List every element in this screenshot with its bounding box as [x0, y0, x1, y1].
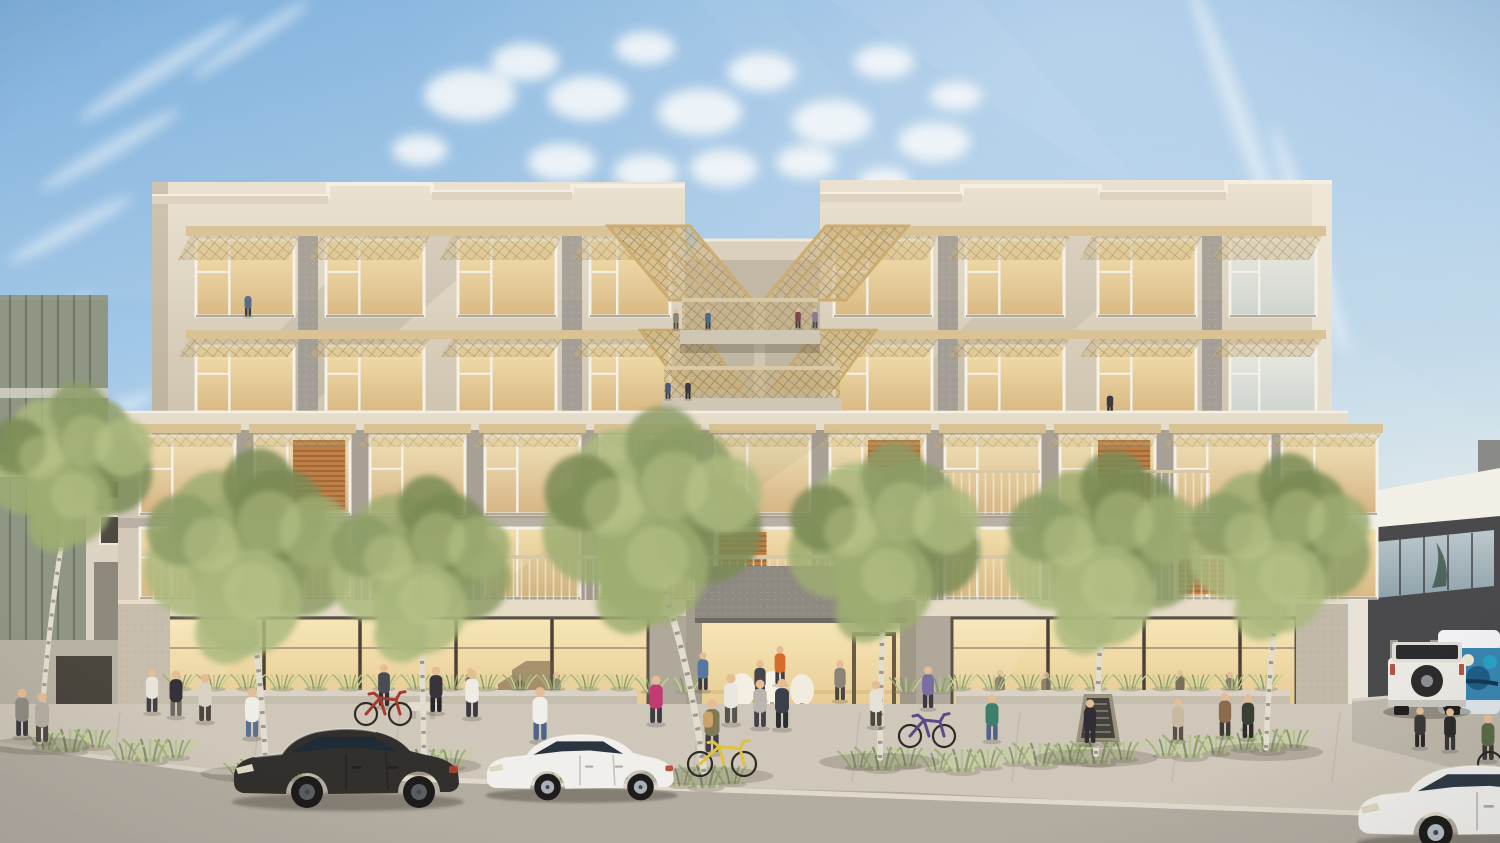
architectural-rendering: Street-level architectural rendering of … — [0, 0, 1500, 843]
scene-canvas: Street-level architectural rendering of … — [0, 0, 1500, 843]
